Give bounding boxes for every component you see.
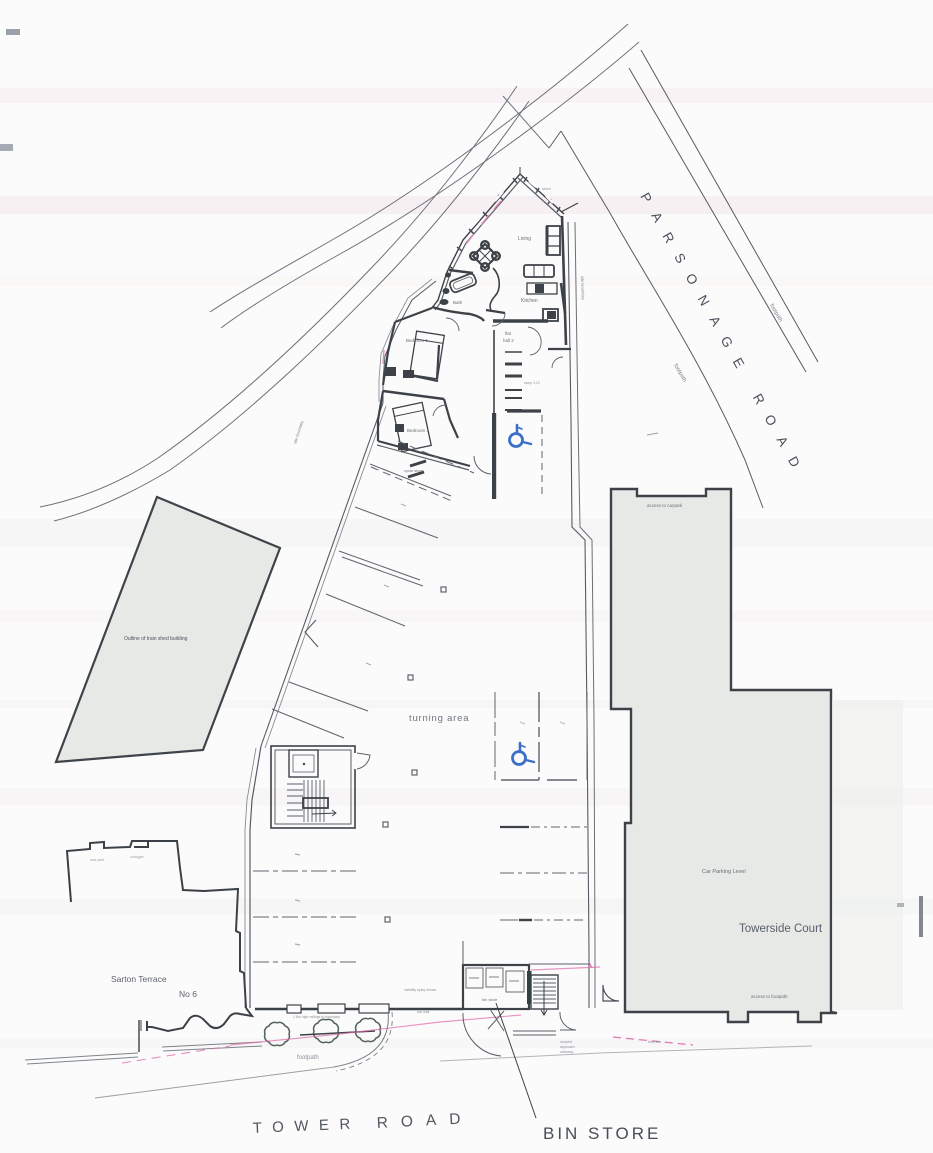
svg-text:low wall: low wall [417, 1010, 429, 1014]
svg-text:ramp 1:12: ramp 1:12 [524, 381, 540, 385]
svg-text:turning area: turning area [409, 713, 469, 724]
svg-text:Bath: Bath [453, 300, 463, 305]
svg-text:1.8m high railings to boundary: 1.8m high railings to boundary [293, 1015, 340, 1019]
svg-text:approach: approach [560, 1045, 575, 1049]
svg-text:Sarton Terrace: Sarton Terrace [111, 974, 167, 984]
svg-text:access to carpark: access to carpark [647, 503, 683, 508]
svg-text:ramped: ramped [560, 1040, 572, 1044]
svg-text:hall 2: hall 2 [503, 338, 514, 343]
svg-text:Outline of train shed building: Outline of train shed building [124, 636, 188, 642]
svg-text:Towerside Court: Towerside Court [739, 923, 823, 935]
svg-text:BIN STORE: BIN STORE [543, 1124, 661, 1143]
svg-text:No 6: No 6 [179, 989, 197, 999]
svg-text:kerb line: kerb line [648, 1040, 661, 1044]
svg-text:Kitchen: Kitchen [521, 298, 538, 304]
svg-text:Bedroom 1: Bedroom 1 [406, 338, 429, 343]
svg-text:Car Parking Level: Car Parking Level [702, 869, 746, 875]
svg-text:bin store: bin store [482, 997, 498, 1002]
svg-text:rear yard: rear yard [90, 858, 104, 862]
svg-text:Bedroom 2: Bedroom 2 [407, 428, 430, 433]
svg-text:cycle store: cycle store [404, 468, 424, 473]
svg-text:footpath: footpath [297, 1055, 319, 1061]
svg-text:site boundary: site boundary [580, 276, 586, 300]
svg-text:access to footpath: access to footpath [751, 994, 788, 999]
svg-text:Living: Living [518, 236, 531, 242]
svg-text:store: store [542, 186, 552, 191]
svg-text:walkway: walkway [560, 1050, 573, 1054]
svg-text:visibility splay shown: visibility splay shown [404, 988, 436, 992]
svg-text:flat: flat [505, 331, 512, 336]
svg-text:outrigger: outrigger [130, 855, 145, 859]
